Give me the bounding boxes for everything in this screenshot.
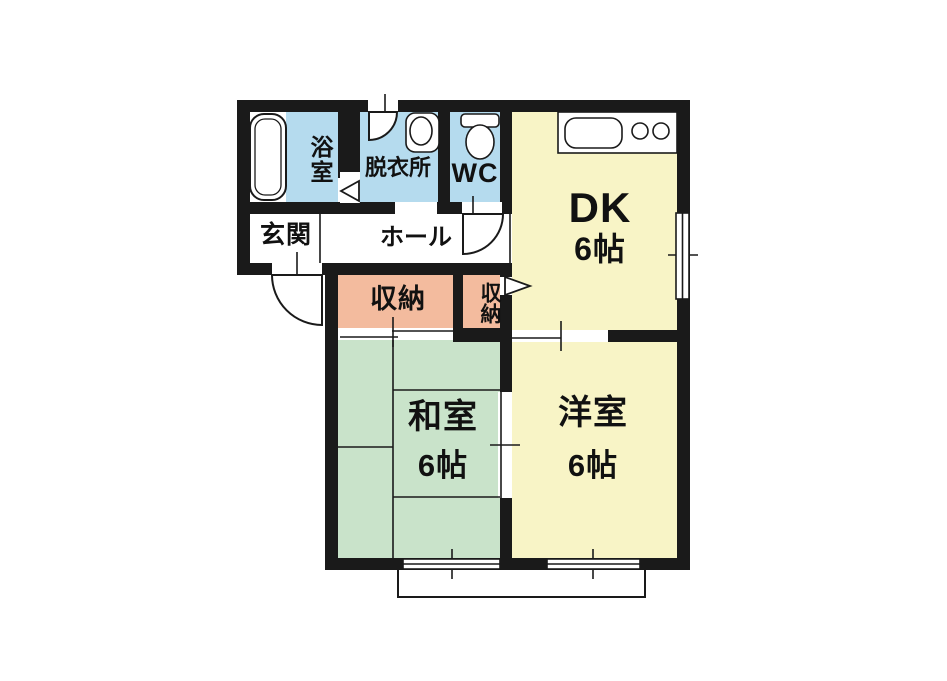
dressing-label: 脱衣所	[357, 157, 439, 179]
wall-under-storage-small	[453, 328, 512, 342]
wall-top	[237, 100, 690, 112]
entrance-label: 玄関	[250, 223, 322, 248]
stove-burner	[632, 123, 648, 139]
dk-label: DK	[540, 187, 660, 229]
wc-door-gap	[462, 202, 502, 214]
western-room-window	[547, 559, 640, 569]
bath-label: 浴室	[299, 124, 331, 196]
dk-size-label: 6帖	[540, 233, 660, 265]
floor-plan-drawing	[0, 0, 947, 681]
storage-large-label: 収納	[357, 286, 439, 313]
dk-western-opening	[512, 330, 608, 342]
stove-burner	[653, 123, 669, 139]
western-room-size-label: 6帖	[543, 450, 643, 481]
japanese-room-label: 和室	[393, 400, 493, 434]
hall-label: ホール	[374, 226, 458, 250]
wall-dressing-wc	[438, 100, 450, 214]
wc-door-swing	[463, 214, 503, 254]
japanese-room-size-label: 6帖	[393, 450, 493, 481]
wall-wc-dk	[500, 100, 512, 205]
japanese-room-window	[403, 559, 500, 569]
bathtub-icon	[250, 114, 286, 200]
floor-plan: 浴室 脱衣所 WC DK 6帖 玄関 ホール 収納 収納 和室 6帖 洋室 6帖	[0, 0, 947, 681]
wall-dk-western	[608, 330, 677, 342]
kitchen-counter	[558, 112, 677, 153]
wall-left-upper	[237, 100, 250, 275]
storage-small-label: 収納	[466, 277, 500, 329]
wall-left-lower	[325, 263, 338, 570]
dressing-outer-door-gap	[368, 99, 398, 113]
western-room-label: 洋室	[543, 396, 643, 430]
wall-right	[677, 100, 690, 570]
kitchen-sink	[565, 118, 622, 148]
dk-window	[676, 213, 689, 299]
dressing-entry-gap	[395, 202, 437, 214]
washbasin-icon	[406, 113, 439, 152]
entrance-door-swing	[272, 275, 322, 325]
wc-label: WC	[450, 160, 500, 187]
balcony-outline	[398, 570, 645, 597]
